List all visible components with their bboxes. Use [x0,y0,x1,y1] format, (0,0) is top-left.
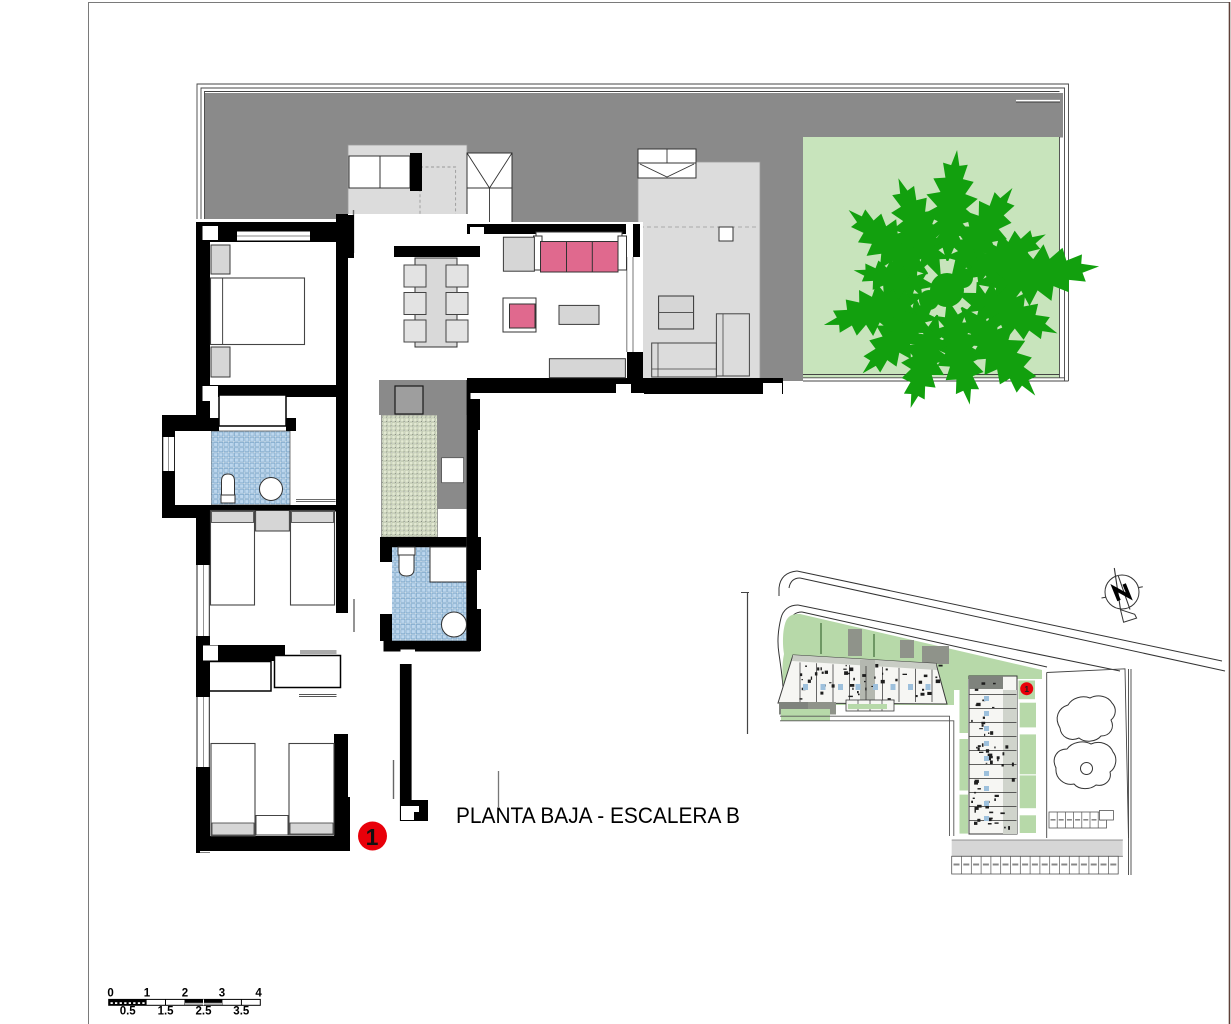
svg-text:1.5: 1.5 [158,1006,175,1018]
svg-text:2.5: 2.5 [196,1006,213,1018]
svg-text:1: 1 [144,988,151,1000]
svg-text:3: 3 [219,988,225,1000]
svg-text:0.5: 0.5 [120,1006,137,1018]
svg-text:2: 2 [182,988,188,1000]
svg-text:1: 1 [366,824,379,850]
svg-text:0: 0 [107,988,113,1000]
svg-text:4: 4 [255,988,262,1000]
svg-text:PLANTA BAJA - ESCALERA B: PLANTA BAJA - ESCALERA B [456,803,740,828]
svg-text:3.5: 3.5 [233,1006,250,1018]
svg-text:1: 1 [1024,684,1029,694]
